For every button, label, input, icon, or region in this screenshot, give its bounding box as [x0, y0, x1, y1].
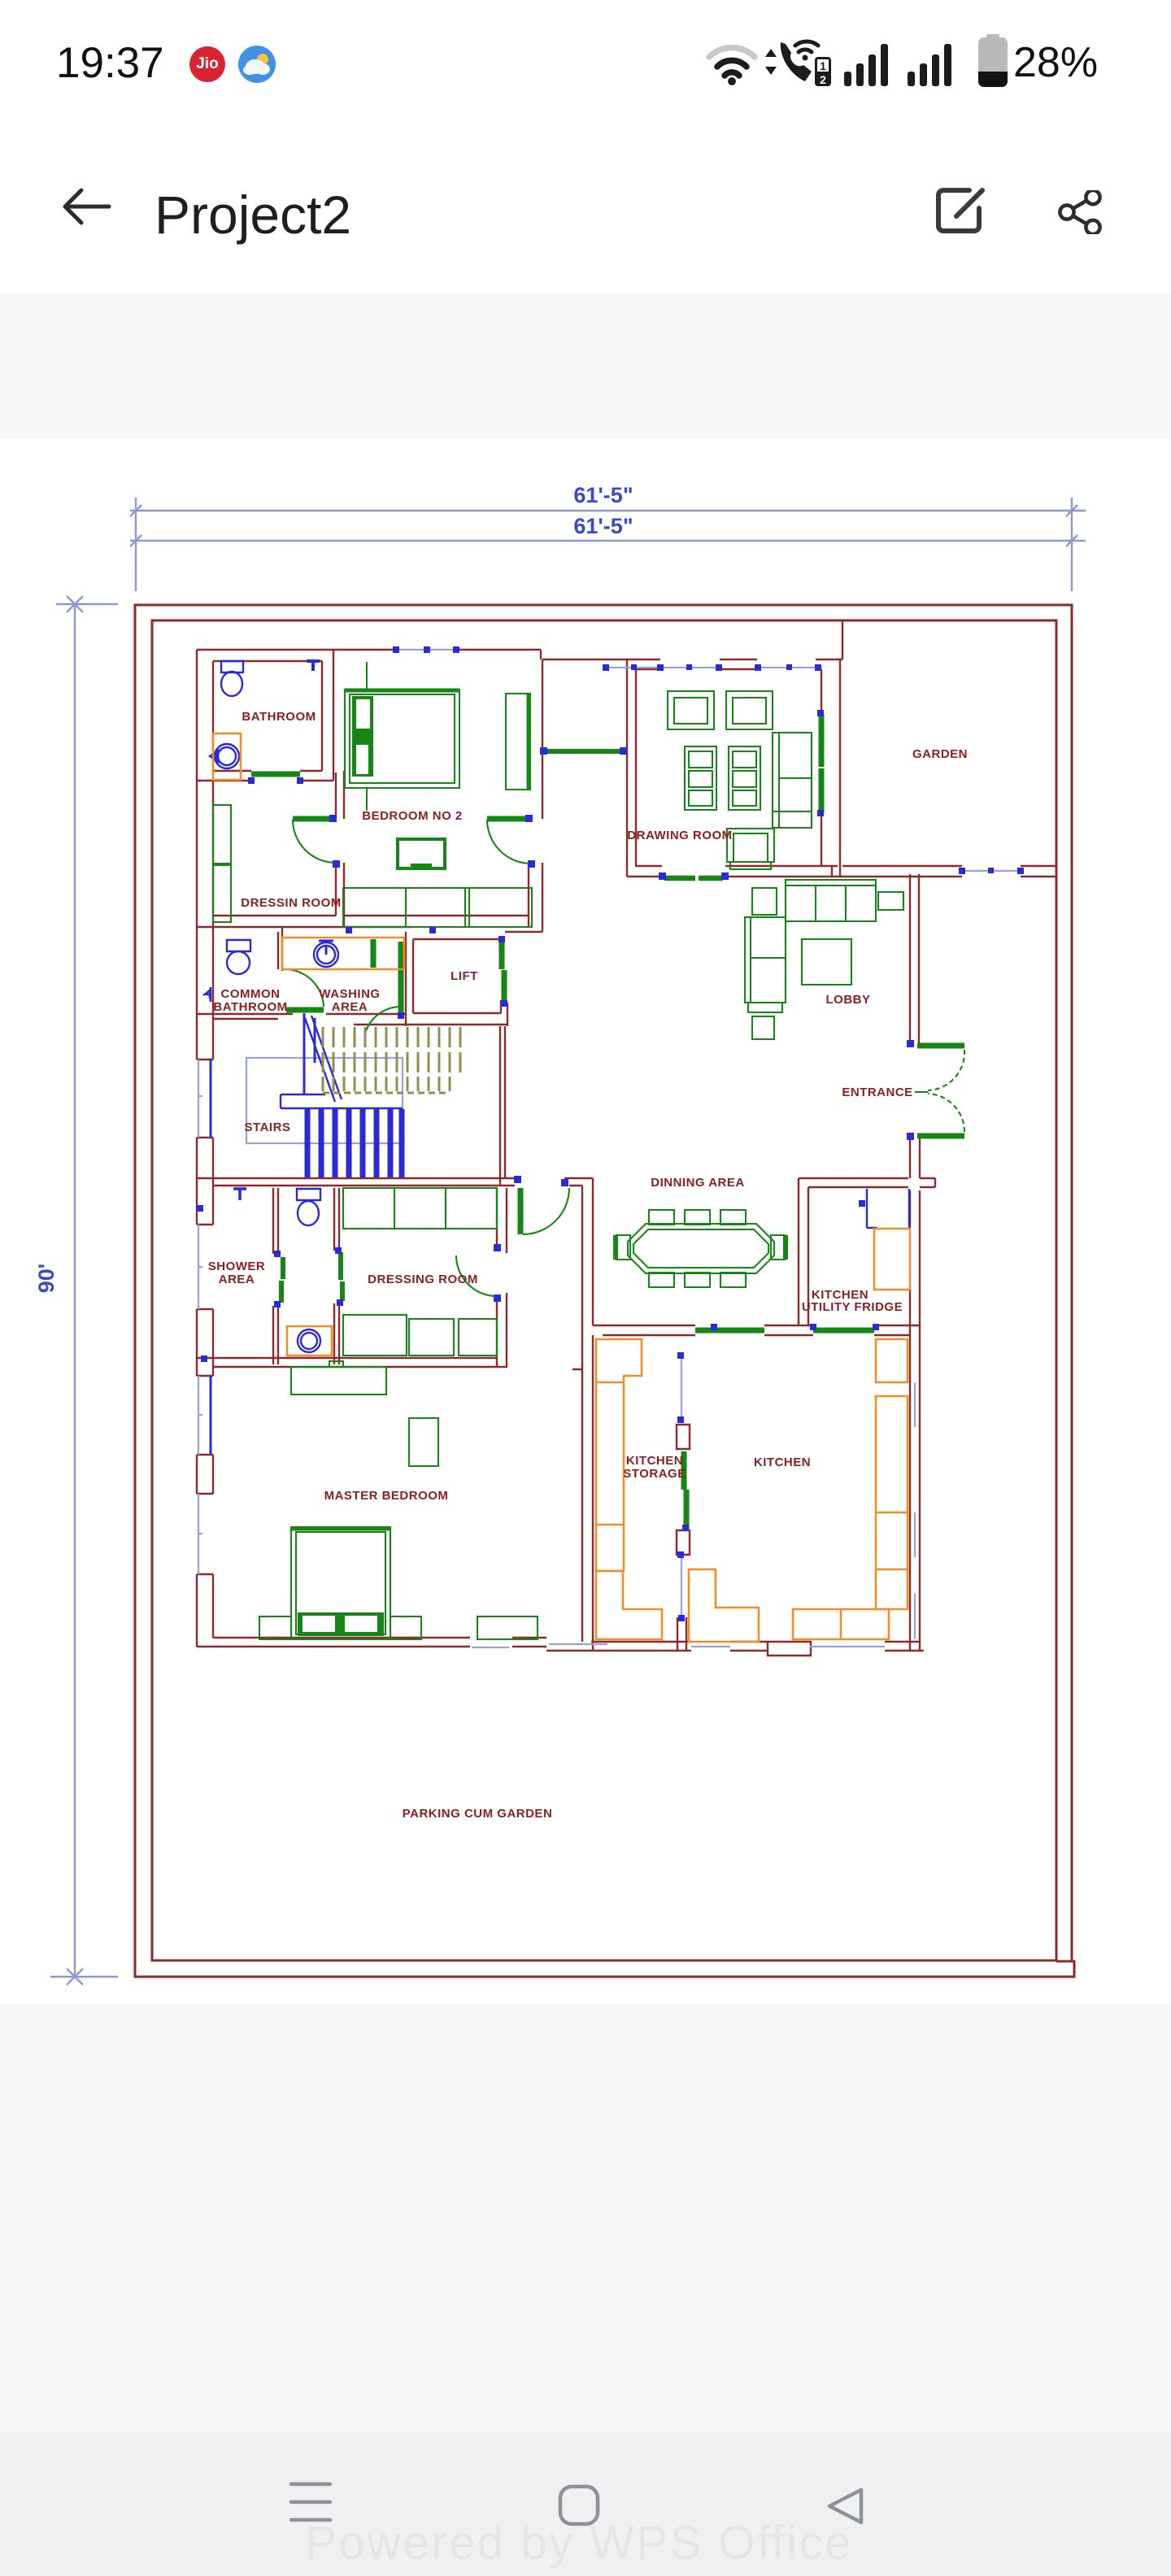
svg-text:STORAGE: STORAGE	[623, 1467, 686, 1481]
svg-text:DRAWING ROOM: DRAWING ROOM	[627, 829, 732, 842]
svg-text:AREA: AREA	[332, 1000, 368, 1014]
svg-text:90': 90'	[34, 1264, 59, 1293]
svg-text:STAIRS: STAIRS	[245, 1120, 291, 1134]
svg-text:DRESSING ROOM: DRESSING ROOM	[368, 1273, 478, 1286]
svg-text:PARKING CUM GARDEN: PARKING CUM GARDEN	[403, 1807, 553, 1821]
svg-text:WASHING: WASHING	[319, 987, 380, 1001]
svg-text:KITCHEN: KITCHEN	[626, 1454, 683, 1468]
svg-text:ENTRANCE: ENTRANCE	[842, 1086, 912, 1099]
svg-text:COMMON: COMMON	[221, 987, 281, 1001]
svg-text:SHOWER: SHOWER	[208, 1260, 266, 1273]
svg-text:61'-5": 61'-5"	[573, 483, 633, 507]
svg-text:BATHROOM: BATHROOM	[213, 1000, 287, 1014]
svg-text:GARDEN: GARDEN	[912, 747, 968, 761]
svg-text:DRESSIN ROOM: DRESSIN ROOM	[241, 896, 342, 910]
svg-text:LOBBY: LOBBY	[826, 993, 871, 1007]
svg-text:DINNING AREA: DINNING AREA	[651, 1176, 744, 1190]
svg-text:LIFT: LIFT	[451, 969, 478, 983]
svg-text:MASTER BEDROOM: MASTER BEDROOM	[324, 1489, 449, 1503]
svg-text:BATHROOM: BATHROOM	[242, 710, 316, 724]
svg-text:UTILITY FRIDGE: UTILITY FRIDGE	[802, 1300, 903, 1314]
svg-text:KITCHEN: KITCHEN	[754, 1456, 811, 1469]
svg-text:AREA: AREA	[219, 1273, 255, 1286]
svg-text:61'-5": 61'-5"	[573, 514, 633, 538]
svg-text:BEDROOM NO 2: BEDROOM NO 2	[362, 809, 463, 823]
